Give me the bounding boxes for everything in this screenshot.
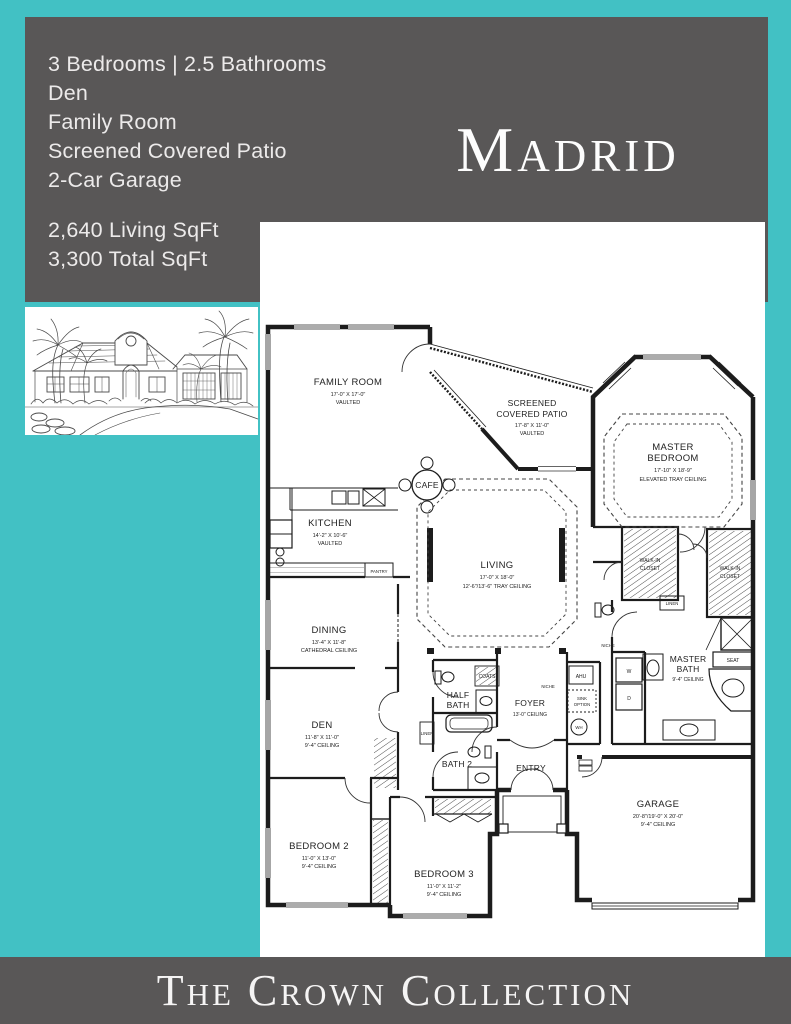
label-half-bath-2: BATH — [447, 700, 470, 710]
label-kitchen-dims: 14'-2" X 10'-6" — [313, 533, 348, 539]
label-wic1-2: CLOSET — [640, 566, 660, 572]
label-niche-foyer: NICHE — [541, 684, 555, 689]
house-sketch — [25, 307, 258, 435]
label-living-dims: 17'-0" X 18'-0" — [480, 575, 515, 581]
label-kitchen-ceiling: VAULTED — [318, 541, 343, 547]
label-bedroom2-dims: 11'-0" X 13'-0" — [302, 856, 336, 862]
label-dining-dims: 13'-4" X 11'-8" — [312, 640, 346, 646]
label-bedroom2-ceiling: 9'-4" CEILING — [302, 864, 337, 870]
label-ahu: AHU — [576, 674, 587, 680]
label-bedroom2: BEDROOM 2 — [289, 841, 349, 852]
label-bath2: BATH 2 — [442, 759, 472, 769]
label-garage-ceiling: 9'-4" CEILING — [641, 822, 676, 828]
house-illustration-card — [25, 307, 258, 435]
label-dining: DINING — [311, 625, 346, 636]
label-bedroom3: BEDROOM 3 — [414, 869, 474, 880]
label-family-ceiling: VAULTED — [336, 400, 361, 406]
label-family-dims: 17'-0" X 17'-0" — [331, 392, 366, 398]
label-patio-1: SCREENED — [508, 398, 557, 408]
label-wic2-1: WALK-IN — [720, 566, 741, 572]
label-entry: ENTRY — [516, 763, 546, 773]
label-master-dims: 17'-10" X 18'-9" — [654, 468, 692, 474]
label-sink-option-2: OPTION — [574, 702, 590, 707]
label-dining-ceiling: CATHEDRAL CEILING — [301, 648, 357, 654]
label-master-bath-1: MASTER — [670, 654, 707, 664]
label-wic2-2: CLOSET — [720, 574, 740, 580]
plan-name-title: Madrid — [343, 95, 791, 205]
label-den-ceiling: 9'-4" CEILING — [305, 743, 340, 749]
label-foyer-ceiling: 13'-0" CEILING — [513, 712, 547, 718]
label-master-bath-ceiling: 9'-4" CEILING — [672, 677, 703, 683]
footer-band: The Crown Collection — [0, 957, 791, 1024]
label-garage-dims: 20'-8"/19'-0" X 20'-0" — [633, 814, 683, 820]
label-den: DEN — [312, 720, 333, 731]
label-living-ceiling: 12'-6"/13'-6" TRAY CEILING — [463, 584, 532, 590]
label-washer: W — [627, 669, 632, 675]
feature-line: Family Room — [48, 108, 326, 137]
label-kitchen: KITCHEN — [308, 518, 352, 529]
label-pantry: PANTRY — [370, 569, 387, 574]
feature-line: 3 Bedrooms | 2.5 Bathrooms — [48, 50, 326, 79]
label-half-bath-1: HALF — [447, 690, 470, 700]
label-niche-hall: NICHE — [601, 643, 615, 648]
label-patio-2: COVERED PATIO — [496, 409, 567, 419]
label-master-ceiling: ELEVATED TRAY CEILING — [639, 477, 706, 483]
flyer-page: { "colors": {"teal":"#42c1c4","gray":"#5… — [0, 0, 791, 1024]
label-foyer: FOYER — [515, 698, 545, 708]
label-bedroom3-dims: 11'-0" X 11'-2" — [427, 884, 461, 890]
label-master-1: MASTER — [652, 442, 693, 453]
label-den-dims: 11'-8" X 11'-0" — [305, 735, 339, 741]
label-sink-option-1: SINK — [577, 696, 587, 701]
feature-line: Den — [48, 79, 326, 108]
label-cafe: CAFE — [415, 480, 439, 490]
label-bedroom3-ceiling: 9'-4" CEILING — [427, 892, 462, 898]
label-family-room: FAMILY ROOM — [314, 377, 382, 388]
label-wic1-1: WALK-IN — [640, 558, 661, 564]
label-linen-hall: LINEN — [421, 731, 434, 736]
floorplan-drawing: FAMILY ROOM 17'-0" X 17'-0" VAULTED SCRE… — [260, 222, 765, 957]
label-living: LIVING — [481, 560, 514, 571]
label-linen-master: LINEN — [666, 601, 679, 606]
label-patio-ceiling: VAULTED — [520, 431, 545, 437]
label-garage: GARAGE — [637, 799, 679, 810]
feature-line: 2-Car Garage — [48, 166, 326, 195]
floorplan-card: FAMILY ROOM 17'-0" X 17'-0" VAULTED SCRE… — [260, 222, 765, 957]
label-master-2: BEDROOM — [647, 453, 698, 464]
label-master-bath-2: BATH — [677, 664, 700, 674]
label-dryer: D — [627, 696, 631, 702]
label-coats: COATS — [479, 674, 497, 680]
label-seat: SEAT — [727, 658, 740, 664]
footer-brand: The Crown Collection — [157, 965, 635, 1016]
label-patio-dims: 17'-8" X 11'-0" — [515, 423, 549, 429]
feature-line: Screened Covered Patio — [48, 137, 326, 166]
label-water-heater: WH — [575, 725, 582, 730]
